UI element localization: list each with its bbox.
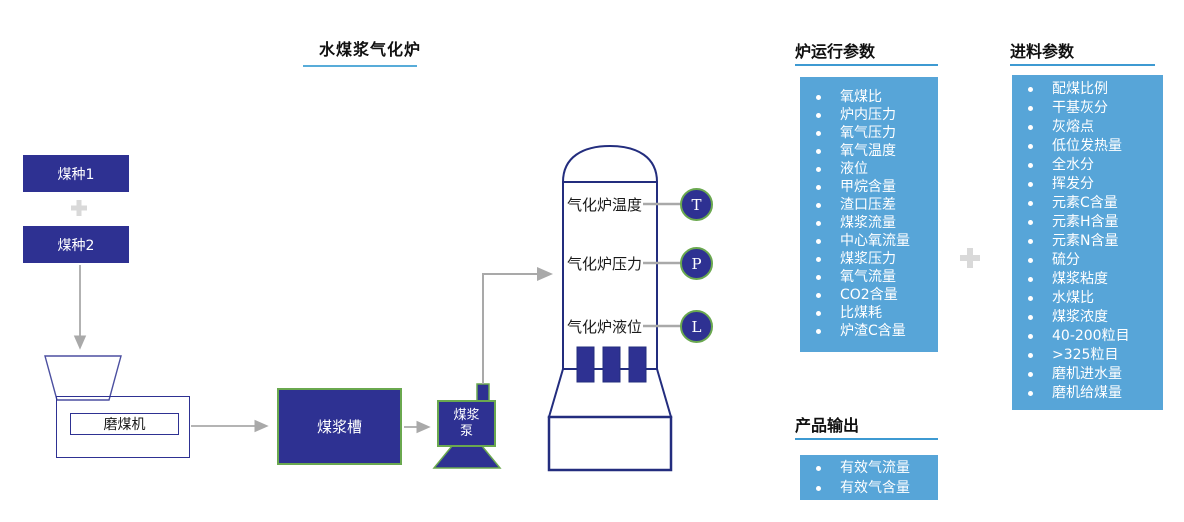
pressure-tag-circle: P [680,247,713,280]
list-item: 氧煤比 [800,88,938,106]
list-item: 低位发热量 [1012,137,1163,156]
furnace-params-panel: 氧煤比炉内压力氧气压力氧气温度液位甲烷含量渣口压差煤浆流量中心氧流量煤浆压力氧气… [800,77,938,352]
hopper-shape [45,356,121,400]
coal-mill-label: 磨煤机 [70,413,179,435]
furnace-params-title: 炉运行参数 [795,38,875,62]
feed-params-underline [1010,64,1155,66]
list-item: 配煤比例 [1012,80,1163,99]
coal-type-1-box: 煤种1 [23,155,129,192]
list-item: 炉渣C含量 [800,322,938,340]
gasifier-dome [563,146,657,182]
list-item: 磨机给煤量 [1012,384,1163,403]
product-output-underline [795,438,938,440]
list-item: 液位 [800,160,938,178]
list-item: 煤浆压力 [800,250,938,268]
gasifier-base [549,417,671,470]
product-output-list: 有效气流量有效气含量 [800,458,938,498]
slurry-pump-label-line1: 煤浆 [453,408,479,424]
list-item: 灰熔点 [1012,118,1163,137]
title-underline [303,65,417,67]
list-item: 炉内压力 [800,106,938,124]
slurry-pump-label-line2: 泵 [460,424,473,440]
list-item: 比煤耗 [800,304,938,322]
plus-icon [71,200,87,216]
slurry-pump-box: 煤浆 泵 [437,400,496,447]
list-item: 元素H含量 [1012,213,1163,232]
list-item: 煤浆浓度 [1012,308,1163,327]
gasifier-pressure-label: 气化炉压力 [567,253,653,273]
list-item: 渣口压差 [800,196,938,214]
nozzle-tube [603,347,620,382]
list-item: CO2含量 [800,286,938,304]
list-item: 煤浆流量 [800,214,938,232]
feed-params-list: 配煤比例干基灰分灰熔点低位发热量全水分挥发分元素C含量元素H含量元素N含量硫分煤… [1012,80,1163,403]
arrow-pump-to-gasifier [483,274,550,384]
list-item: 硫分 [1012,251,1163,270]
level-tag-circle: L [680,310,713,343]
page-title: 水煤浆气化炉 [280,36,460,60]
coal-type-2-box: 煤种2 [23,226,129,263]
list-item: 磨机进水量 [1012,365,1163,384]
list-item: 挥发分 [1012,175,1163,194]
list-item: 全水分 [1012,156,1163,175]
list-item: 甲烷含量 [800,178,938,196]
list-item: 煤浆粘度 [1012,270,1163,289]
list-item: 中心氧流量 [800,232,938,250]
list-item: 氧气压力 [800,124,938,142]
list-item: 元素C含量 [1012,194,1163,213]
product-output-title: 产品输出 [795,412,859,436]
list-item: 有效气流量 [800,458,938,478]
nozzle-tube [629,347,646,382]
pump-base [434,446,500,468]
list-item: 元素N含量 [1012,232,1163,251]
gasifier-temperature-label: 气化炉温度 [567,194,653,214]
list-item: 水煤比 [1012,289,1163,308]
list-item: 有效气含量 [800,478,938,498]
slurry-tank-box: 煤浆槽 [277,388,402,465]
nozzle-tube [577,347,594,382]
list-item: 40-200粒目 [1012,327,1163,346]
list-item: 氧气温度 [800,142,938,160]
product-output-panel: 有效气流量有效气含量 [800,455,938,500]
furnace-params-list: 氧煤比炉内压力氧气压力氧气温度液位甲烷含量渣口压差煤浆流量中心氧流量煤浆压力氧气… [800,88,938,340]
plus-icon [960,248,980,268]
list-item: 氧气流量 [800,268,938,286]
list-item: >325粒目 [1012,346,1163,365]
furnace-params-underline [795,64,938,66]
list-item: 干基灰分 [1012,99,1163,118]
process-diagram: 水煤浆气化炉 煤种1 煤种2 磨煤机 煤浆槽 煤浆 泵 气化炉温度 T 气化炉压… [0,0,1184,522]
temperature-tag-circle: T [680,188,713,221]
feed-params-panel: 配煤比例干基灰分灰熔点低位发热量全水分挥发分元素C含量元素H含量元素N含量硫分煤… [1012,75,1163,410]
gasifier-level-label: 气化炉液位 [567,316,653,336]
feed-params-title: 进料参数 [1010,38,1074,62]
